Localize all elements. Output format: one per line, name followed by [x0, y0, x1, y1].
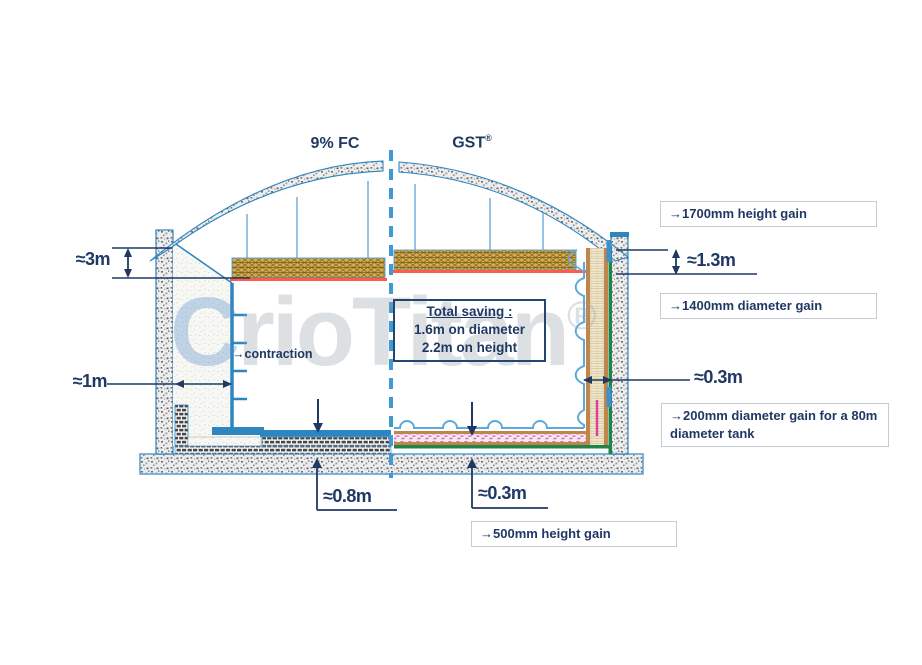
tank-comparison-diagram: CrioTitan® 9% FC GST® ≈3m ≈1m ≈1.3m ≈0.3… [0, 0, 922, 665]
dome-roof-gst [399, 162, 628, 261]
dimension-label-3m: ≈3m [55, 249, 110, 270]
label-9fc-side: 9% FC [304, 135, 366, 153]
floor-arrow-gst [467, 402, 477, 436]
gst-registered-icon: ® [485, 133, 492, 143]
dimension-label-0-3m-right: ≈0.3m [694, 367, 742, 388]
dimension-label-1-3m: ≈1.3m [687, 250, 735, 271]
dimension-label-0-3m-bottom: ≈0.3m [478, 483, 526, 504]
callout-diameter-gain-1400: →1400mm diameter gain [660, 293, 877, 319]
label-9fc-text: 9% FC [311, 135, 360, 152]
dimension-label-1m: ≈1m [55, 371, 107, 392]
left-outer-wall [156, 230, 173, 454]
contraction-label: →contraction [232, 347, 313, 361]
gst-floor-layers [394, 421, 611, 449]
total-saving-diameter: 1.6m on diameter [395, 321, 544, 339]
callout-diameter-gain-200: →200mm diameter gain for a 80m diameter … [661, 403, 889, 447]
callout-height-gain-500: →500mm height gain [471, 521, 677, 547]
suspended-deck-gst [392, 250, 590, 273]
dimension-label-0-8m: ≈0.8m [323, 486, 371, 507]
callout-height-gain-1700: →1700mm height gain [660, 201, 877, 227]
total-saving-box: Total saving : 1.6m on diameter 2.2m on … [393, 299, 546, 362]
label-gst-side: GST® [441, 133, 503, 152]
right-outer-wall [610, 232, 629, 454]
floor-arrow-fc [313, 399, 323, 433]
label-gst-text: GST [452, 134, 485, 151]
dome-roof-fc [150, 161, 383, 261]
total-saving-height: 2.2m on height [395, 339, 544, 357]
total-saving-title: Total saving : [395, 303, 544, 321]
suspended-deck-fc [230, 258, 387, 281]
